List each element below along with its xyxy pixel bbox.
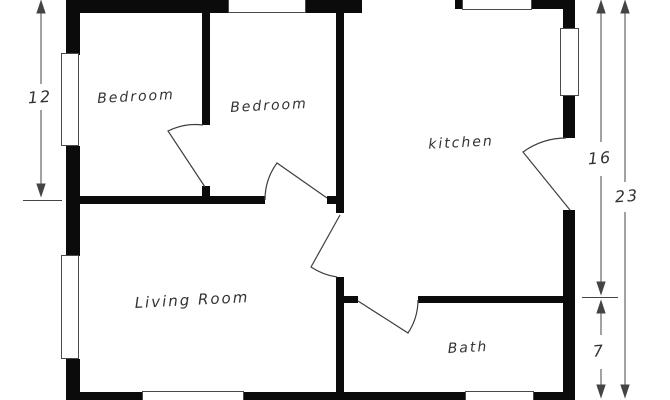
linework-overlay <box>0 0 670 400</box>
door-kitchen <box>311 215 340 277</box>
dim-arrow-7-down <box>597 385 605 397</box>
door-bedroom2 <box>265 163 327 200</box>
label-kitchen: kitchen <box>428 133 494 152</box>
door-bath <box>358 300 418 333</box>
door-bedroom1 <box>168 125 205 187</box>
dim-label-23: 23 <box>613 186 641 207</box>
dim-arrow-7-up <box>597 301 605 313</box>
floor-plan: Bedroom Bedroom kitchen Living Room Bath… <box>0 0 670 400</box>
label-bath: Bath <box>447 339 488 357</box>
dim-arrow-left-up <box>37 1 45 13</box>
dim-arrow-16-down <box>597 282 605 294</box>
dim-label-12: 12 <box>26 87 54 108</box>
dim-label-7: 7 <box>591 341 606 361</box>
dim-arrow-23-down <box>621 385 629 397</box>
dim-label-16: 16 <box>586 148 614 169</box>
door-back <box>523 138 570 210</box>
dim-arrow-23-up <box>621 1 629 13</box>
dim-arrow-left-down <box>37 184 45 196</box>
dim-arrow-16-up <box>597 1 605 13</box>
